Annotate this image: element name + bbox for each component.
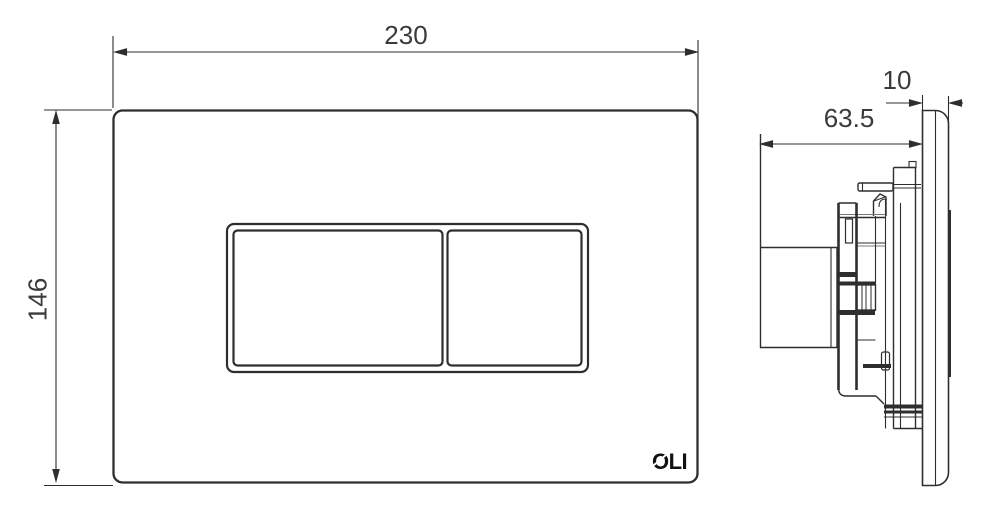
dimension-height-label: 146: [16, 272, 61, 328]
column-hook: [879, 199, 886, 207]
push-rod: [858, 183, 893, 191]
front-view-plate-outline: [114, 111, 698, 483]
arrow-width-left: [115, 49, 127, 55]
dimension-thickness-label: 10: [867, 66, 927, 95]
arrow-thickness-right: [950, 100, 962, 106]
plate-body: [114, 111, 698, 483]
side-view-assembly: [761, 111, 951, 486]
arrow-width-right: [686, 49, 698, 55]
arrow-depth-right: [910, 141, 922, 147]
mid-bar: [863, 364, 891, 368]
fixing-screw-tab: [909, 162, 916, 168]
arrow-height-top: [53, 112, 59, 124]
frame-notch: [846, 219, 853, 243]
oli-logo: OLI: [652, 449, 692, 473]
technical-drawing-canvas: 230 146 63.5 10 OLI: [0, 0, 991, 516]
arrow-thickness-left: [910, 100, 922, 106]
flush-button-large: [234, 231, 443, 366]
clip-bar-3: [838, 310, 875, 315]
dimension-width-label: 230: [346, 21, 466, 50]
flush-button-small: [448, 231, 582, 366]
arrow-height-bottom: [53, 470, 59, 482]
arrow-depth-left: [761, 141, 773, 147]
actuator-box: [761, 134, 838, 348]
dimension-lines-front: [44, 36, 698, 486]
button-frame: [227, 224, 588, 372]
flush-plate-drawing: [0, 0, 991, 516]
bottom-bar-2: [884, 411, 922, 414]
dimension-depth-label: 63.5: [804, 104, 894, 133]
bottom-bar-1: [884, 405, 922, 409]
clip-bar-1: [838, 272, 856, 277]
